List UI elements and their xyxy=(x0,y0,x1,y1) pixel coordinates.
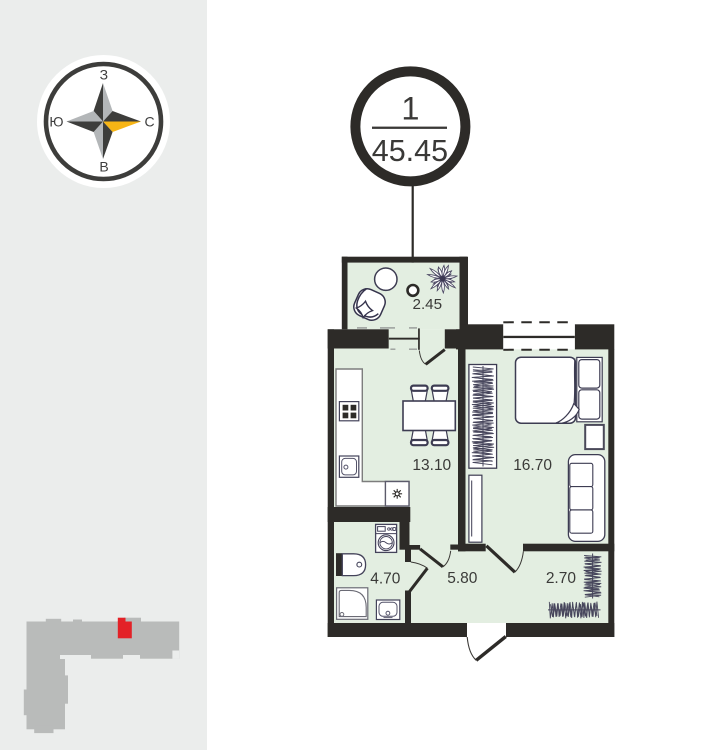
svg-text:З: З xyxy=(100,67,108,83)
svg-text:1: 1 xyxy=(401,90,419,126)
svg-text:2.70: 2.70 xyxy=(546,570,577,587)
svg-text:2.45: 2.45 xyxy=(413,296,443,313)
svg-text:С: С xyxy=(144,114,154,130)
svg-text:13.10: 13.10 xyxy=(412,457,451,474)
svg-text:В: В xyxy=(99,159,108,175)
svg-text:Ю: Ю xyxy=(49,114,63,130)
svg-text:16.70: 16.70 xyxy=(513,457,552,474)
svg-text:5.80: 5.80 xyxy=(447,570,478,587)
svg-text:4.70: 4.70 xyxy=(370,571,401,588)
svg-text:45.45: 45.45 xyxy=(372,134,448,168)
